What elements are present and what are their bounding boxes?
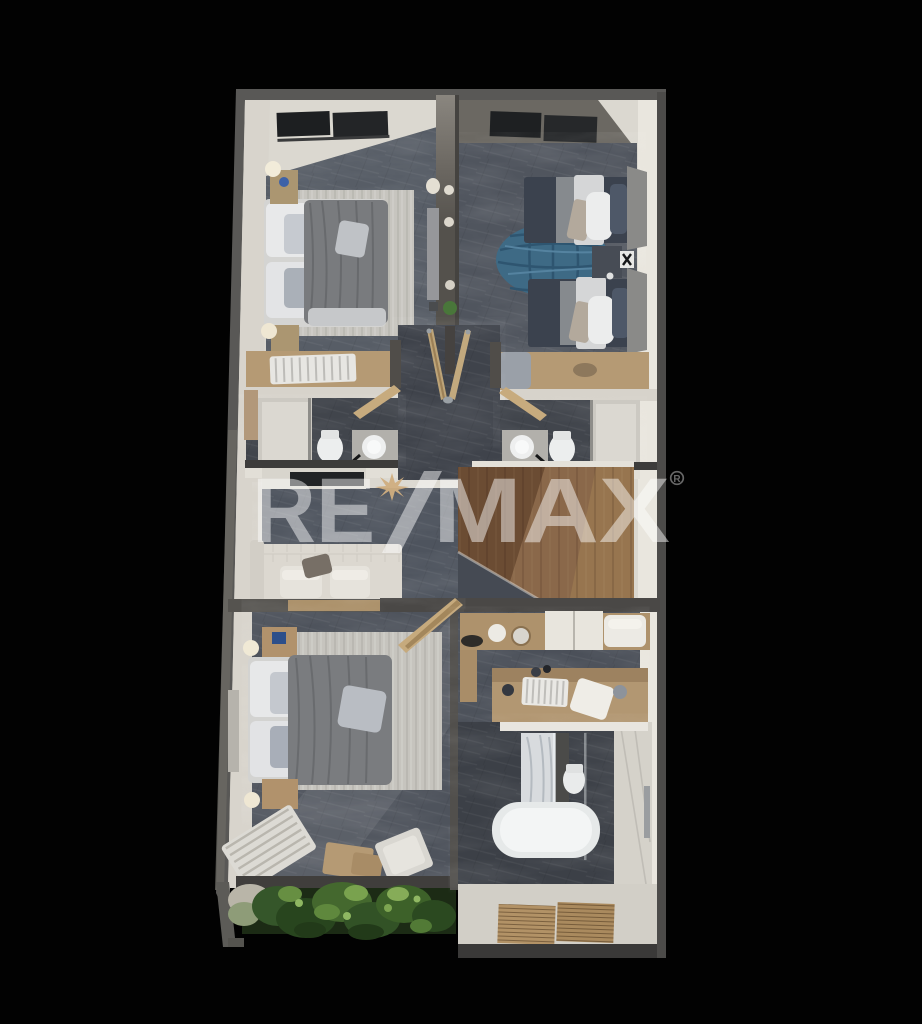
svg-text:RE: RE [252,460,375,562]
svg-text:MAX: MAX [433,460,670,562]
svg-text:R: R [673,474,681,485]
